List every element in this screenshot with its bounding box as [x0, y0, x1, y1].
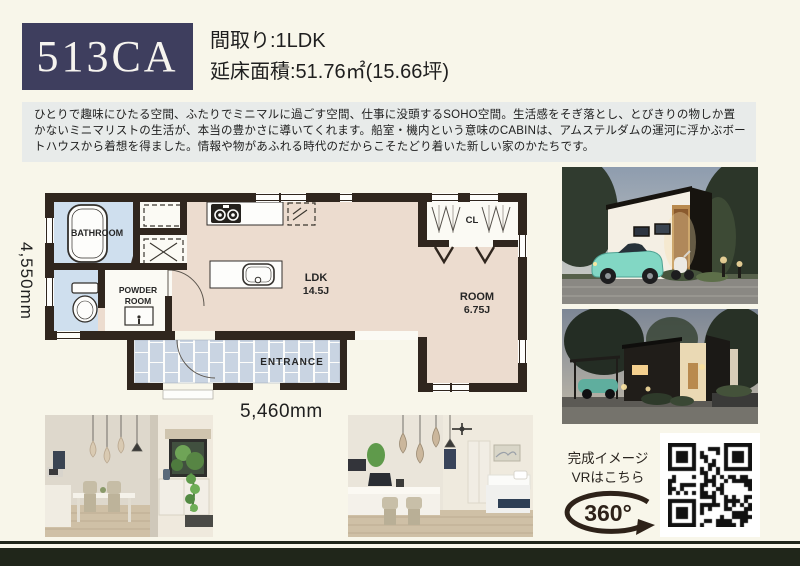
powder-sink [125, 307, 153, 325]
powder-room-label-1: POWDER [119, 285, 157, 295]
footer-rule [0, 541, 800, 544]
kitchen-counter [207, 202, 283, 225]
closet-label: CL [466, 215, 479, 226]
interior-photo-dining [45, 415, 213, 537]
kitchen-island-sink [210, 261, 282, 288]
plan-code: 513CA [36, 31, 178, 82]
plan-code-badge: 513CA [22, 23, 193, 90]
toilet [72, 283, 98, 322]
exterior-photo-front [562, 167, 758, 304]
qr-code-canvas [668, 443, 752, 527]
floor-plan: BATHROOM POWDER ROOM LDK 14.5J ROOM 6.75… [45, 193, 527, 405]
vr-caption-line2: VRはこちら [550, 468, 666, 487]
exterior-photo-angle [562, 309, 758, 424]
powder-room-label-2: ROOM [125, 296, 151, 306]
room-size-label: 6.75J [464, 304, 490, 316]
plan-sheet-page: 513CA 間取り:1LDK 延床面積:51.76㎡(15.66坪) ひとりで趣… [0, 0, 800, 566]
entrance-tiles [134, 340, 340, 399]
footer-bar [0, 548, 800, 566]
plan-summary: 間取り:1LDK 延床面積:51.76㎡(15.66坪) [210, 26, 449, 88]
vr-caption-line1: 完成イメージ [550, 449, 666, 468]
ldk-label: LDK [305, 272, 328, 284]
interior-photo-bedroom [348, 415, 533, 537]
concept-description: ひとりで趣味にひたる空間、ふたりでミニマルに過ごす空間、仕事に没頭するSOHO空… [22, 102, 756, 162]
vr-caption: 完成イメージ VRはこちら [550, 449, 666, 487]
qr-code[interactable] [660, 433, 760, 537]
ldk-size-label: 14.5J [303, 285, 329, 297]
floor-area: 延床面積:51.76㎡(15.66坪) [210, 57, 449, 88]
vr-360-label: 360° [556, 487, 660, 539]
entrance-label: ENTRANCE [260, 357, 324, 368]
layout-type: 間取り:1LDK [210, 26, 449, 57]
room-label: ROOM [460, 291, 494, 303]
dimension-height: 4,550mm [16, 242, 36, 320]
bathroom-label: BATHROOM [71, 228, 123, 238]
vr-360-badge[interactable]: 360° [556, 487, 660, 539]
